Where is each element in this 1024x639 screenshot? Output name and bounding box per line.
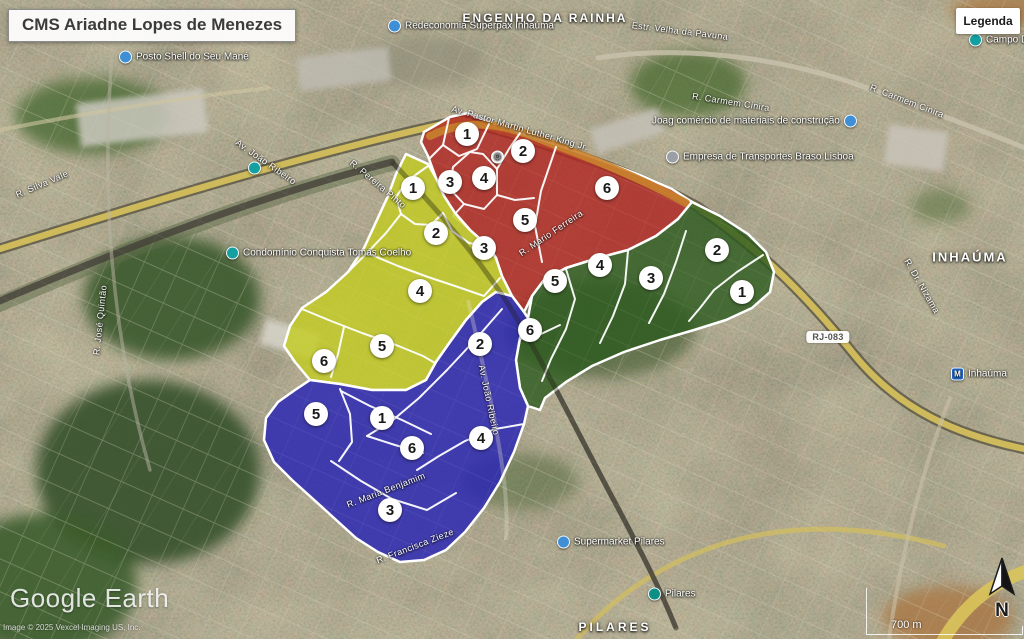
poi-supermarket-pilares: Supermarket Pilares [557,536,665,549]
zone-east-marker-6[interactable]: 6 [518,318,542,342]
street-label-estr-velha-da-pavuna: Estr. Velha da Pavuna [631,20,728,42]
zone-west-marker-3[interactable]: 3 [472,236,496,260]
zone-west-marker-4[interactable]: 4 [408,279,432,303]
street-label-r-jos-quint-o: R. José Quintão [91,284,108,355]
poi-label-text: Redeconomia Superpax Inhaúma [405,21,554,32]
legend-button[interactable]: Legenda [956,8,1020,34]
google-earth-watermark: Google Earth [10,583,169,614]
dot-blue-icon[interactable] [844,115,857,128]
dot-teal-icon[interactable] [226,247,239,260]
poi-condom-nio-conquista-tom-s-coelho: Condomínio Conquista Tomás Coelho [226,247,411,260]
map-title: CMS Ariadne Lopes de Menezes [8,9,296,42]
google-earth-window: ENGENHO DA RAINHAINHAÚMAPILARESAv. Pasto… [0,0,1024,639]
area-label-pilares: PILARES [578,620,651,634]
station-white-icon[interactable]: ⚙ [491,151,504,164]
poi-label-text: Posto Shell do Seu Mané [136,52,249,63]
poi-campo-da: Campo Da [969,34,1024,47]
map-labels-layer: ENGENHO DA RAINHAINHAÚMAPILARESAv. Pasto… [0,0,1024,639]
zone-west-marker-1[interactable]: 1 [401,176,425,200]
poi-redeconomia-superpax-inha-ma: Redeconomia Superpax Inhaúma [388,20,554,33]
zone-north-marker-4[interactable]: 4 [472,166,496,190]
poi-dot-teal [248,162,261,175]
street-label-r-carmem-cinira: R. Carmem Cinira [869,82,946,119]
poi-label-text: Condomínio Conquista Tomás Coelho [243,248,411,259]
poi-posto-shell-do-seu-man: Posto Shell do Seu Mané [119,51,249,64]
scale-bar-label: 700 m [891,619,922,631]
dot-teal-icon[interactable] [248,162,261,175]
zone-north-marker-6[interactable]: 6 [595,176,619,200]
zone-south-marker-5[interactable]: 5 [304,402,328,426]
zone-south-marker-6[interactable]: 6 [400,436,424,460]
pin-grey-icon[interactable] [666,151,679,164]
zone-north-marker-2[interactable]: 2 [511,139,535,163]
zone-north-marker-5[interactable]: 5 [513,208,537,232]
poi-station-white: ⚙ [491,151,504,164]
poi-label-text: Campo Da [986,35,1024,46]
metro-blue-icon[interactable]: M [951,368,964,381]
poi-label-text: Pilares [665,589,696,600]
street-label-r-dr-nizama: R. Dr. Nizama [902,257,941,315]
zone-south-marker-2[interactable]: 2 [468,332,492,356]
zone-north-marker-1[interactable]: 1 [455,122,479,146]
poi-label-text: Supermarket Pilares [574,537,665,548]
poi-empresa-de-transportes-braso-lisboa: Empresa de Transportes Braso Lisboa [666,151,854,164]
street-label-r-carmem-cinira: R. Carmem Cinira [691,91,770,113]
street-label-av-jo-o-ribeiro: Av. João Ribeiro [234,137,298,186]
zone-east-marker-1[interactable]: 1 [730,280,754,304]
dot-blue-icon[interactable] [388,20,401,33]
train-teal-icon[interactable] [648,588,661,601]
zone-north-marker-3[interactable]: 3 [438,170,462,194]
north-label: N [984,600,1020,622]
dot-blue-icon[interactable] [557,536,570,549]
north-arrow-icon [984,556,1020,598]
zone-south-marker-3[interactable]: 3 [378,498,402,522]
zone-east-marker-3[interactable]: 3 [639,266,663,290]
zone-south-marker-1[interactable]: 1 [370,406,394,430]
street-label-r-pereira-pinto: R. Pereira Pinto [348,158,408,211]
street-label-r-silva-vale: R. Silva Vale [14,168,70,199]
zone-east-marker-5[interactable]: 5 [543,269,567,293]
poi-label-text: Empresa de Transportes Braso Lisboa [683,152,854,163]
poi-label-text: Joag comércio de materiais de construção [652,116,840,127]
zone-east-marker-2[interactable]: 2 [705,238,729,262]
poi-label-text: Inhaúma [968,369,1007,380]
north-arrow[interactable]: N [984,556,1020,620]
zone-south-marker-4[interactable]: 4 [469,426,493,450]
area-label-inha-ma: INHAÚMA [932,250,1007,265]
route-badge-rj083: RJ-083 [806,331,849,343]
zone-west-marker-5[interactable]: 5 [370,334,394,358]
dot-teal-icon[interactable] [969,34,982,47]
dot-blue-icon[interactable] [119,51,132,64]
zone-west-marker-6[interactable]: 6 [312,349,336,373]
poi-pilares: Pilares [648,588,696,601]
poi-joag-com-rcio-de-materiais-de-constru-o: Joag comércio de materiais de construção [652,115,857,128]
poi-inha-ma: MInhaúma [951,368,1007,381]
imagery-credit: Image © 2025 Vexcel Imaging US, Inc. [3,623,141,632]
street-label-r-francisca-zieze: R. Francisca Zieze [375,527,455,566]
map-title-text: CMS Ariadne Lopes de Menezes [22,15,282,34]
zone-west-marker-2[interactable]: 2 [424,221,448,245]
zone-east-marker-4[interactable]: 4 [588,253,612,277]
